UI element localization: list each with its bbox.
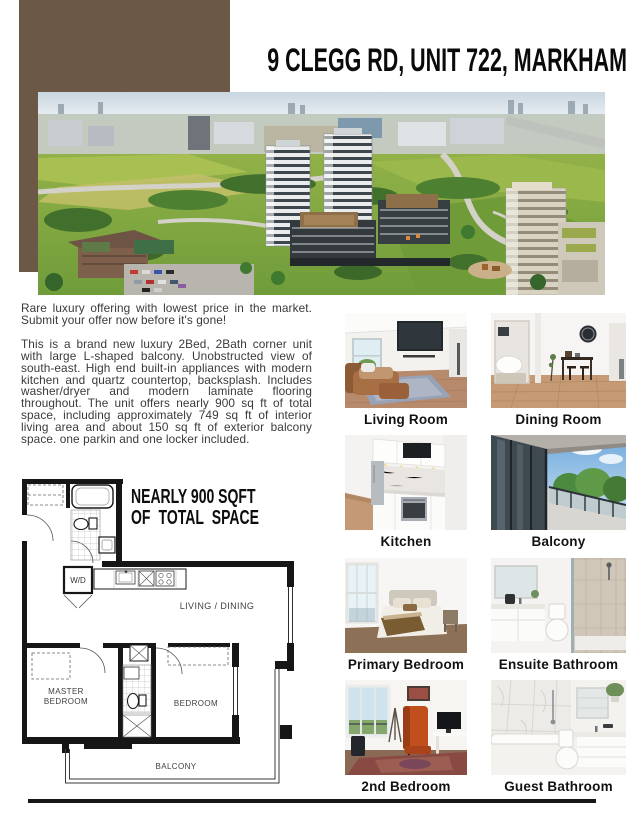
caption-dining-room: Dining Room bbox=[491, 412, 626, 427]
floorplan-bedroom-label: BEDROOM bbox=[174, 699, 218, 708]
floorplan-wd-label: W/D bbox=[70, 576, 86, 585]
glass-wall bbox=[491, 435, 547, 530]
photo-2nd-bedroom bbox=[345, 680, 467, 775]
caption-living-room: Living Room bbox=[345, 412, 467, 427]
sqft-headline-line2: OF TOTAL SPACE bbox=[131, 508, 285, 529]
sqft-headline: NEARLY 900 SQFT OF TOTAL SPACE bbox=[131, 487, 351, 529]
window bbox=[347, 564, 377, 622]
intro-paragraph-2: This is a brand new luxury 2Bed, 2Bath c… bbox=[21, 339, 312, 446]
range-hood bbox=[403, 443, 431, 458]
floorplan-kitchen bbox=[94, 569, 186, 589]
gallery-item-guest-bathroom: Guest Bathroom bbox=[491, 680, 626, 794]
caption-2nd-bedroom: 2nd Bedroom bbox=[345, 779, 467, 794]
gallery-item-balcony: Balcony bbox=[491, 435, 626, 549]
floorplan-balcony-label: BALCONY bbox=[155, 762, 196, 771]
aerial-photo-illustration bbox=[38, 92, 605, 295]
gallery-item-ensuite-bathroom: Ensuite Bathroom bbox=[491, 558, 626, 672]
playground bbox=[468, 261, 512, 279]
photo-gallery: Living Room bbox=[345, 313, 626, 783]
doorway bbox=[495, 321, 529, 383]
caption-kitchen: Kitchen bbox=[345, 534, 467, 549]
gallery-item-dining-room: Dining Room bbox=[491, 313, 626, 427]
bottom-rule bbox=[28, 799, 596, 803]
gallery-item-kitchen: Kitchen bbox=[345, 435, 467, 549]
speaker bbox=[351, 736, 365, 756]
photo-ensuite-bathroom bbox=[491, 558, 626, 653]
caption-ensuite-bathroom: Ensuite Bathroom bbox=[491, 657, 626, 672]
window bbox=[347, 686, 389, 736]
floorplan-master-label-2: BEDROOM bbox=[44, 697, 88, 706]
gallery-item-primary-bedroom: Primary Bedroom bbox=[345, 558, 467, 672]
oven bbox=[401, 497, 427, 521]
floorplan-living-label: LIVING / DINING bbox=[180, 601, 255, 611]
sqft-headline-line1: NEARLY 900 SQFT bbox=[131, 487, 285, 508]
photo-dining-room bbox=[491, 313, 626, 408]
fridge bbox=[371, 461, 384, 505]
caption-balcony: Balcony bbox=[491, 534, 626, 549]
intro-text: Rare luxury offering with lowest price i… bbox=[21, 303, 312, 458]
gallery-item-2nd-bedroom: 2nd Bedroom bbox=[345, 680, 467, 794]
photo-balcony bbox=[491, 435, 626, 530]
caption-primary-bedroom: Primary Bedroom bbox=[345, 657, 467, 672]
caption-guest-bathroom: Guest Bathroom bbox=[491, 779, 626, 794]
bathtub bbox=[491, 734, 563, 775]
page-title: 9 CLEGG RD, UNIT 722, MARKHAM bbox=[267, 42, 627, 79]
mirror-cabinet bbox=[577, 688, 608, 718]
shower bbox=[571, 558, 626, 653]
gallery-item-living-room: Living Room bbox=[345, 313, 467, 427]
photo-living-room bbox=[345, 313, 467, 408]
intro-paragraph-1: Rare luxury offering with lowest price i… bbox=[21, 303, 312, 327]
toilet bbox=[546, 604, 568, 641]
flyer-page: 9 CLEGG RD, UNIT 722, MARKHAM bbox=[0, 0, 640, 828]
photo-kitchen bbox=[345, 435, 467, 530]
photo-guest-bathroom bbox=[491, 680, 626, 775]
floorplan-master-label-1: MASTER bbox=[48, 687, 84, 696]
aerial-photo bbox=[38, 92, 605, 295]
photo-primary-bedroom bbox=[345, 558, 467, 653]
